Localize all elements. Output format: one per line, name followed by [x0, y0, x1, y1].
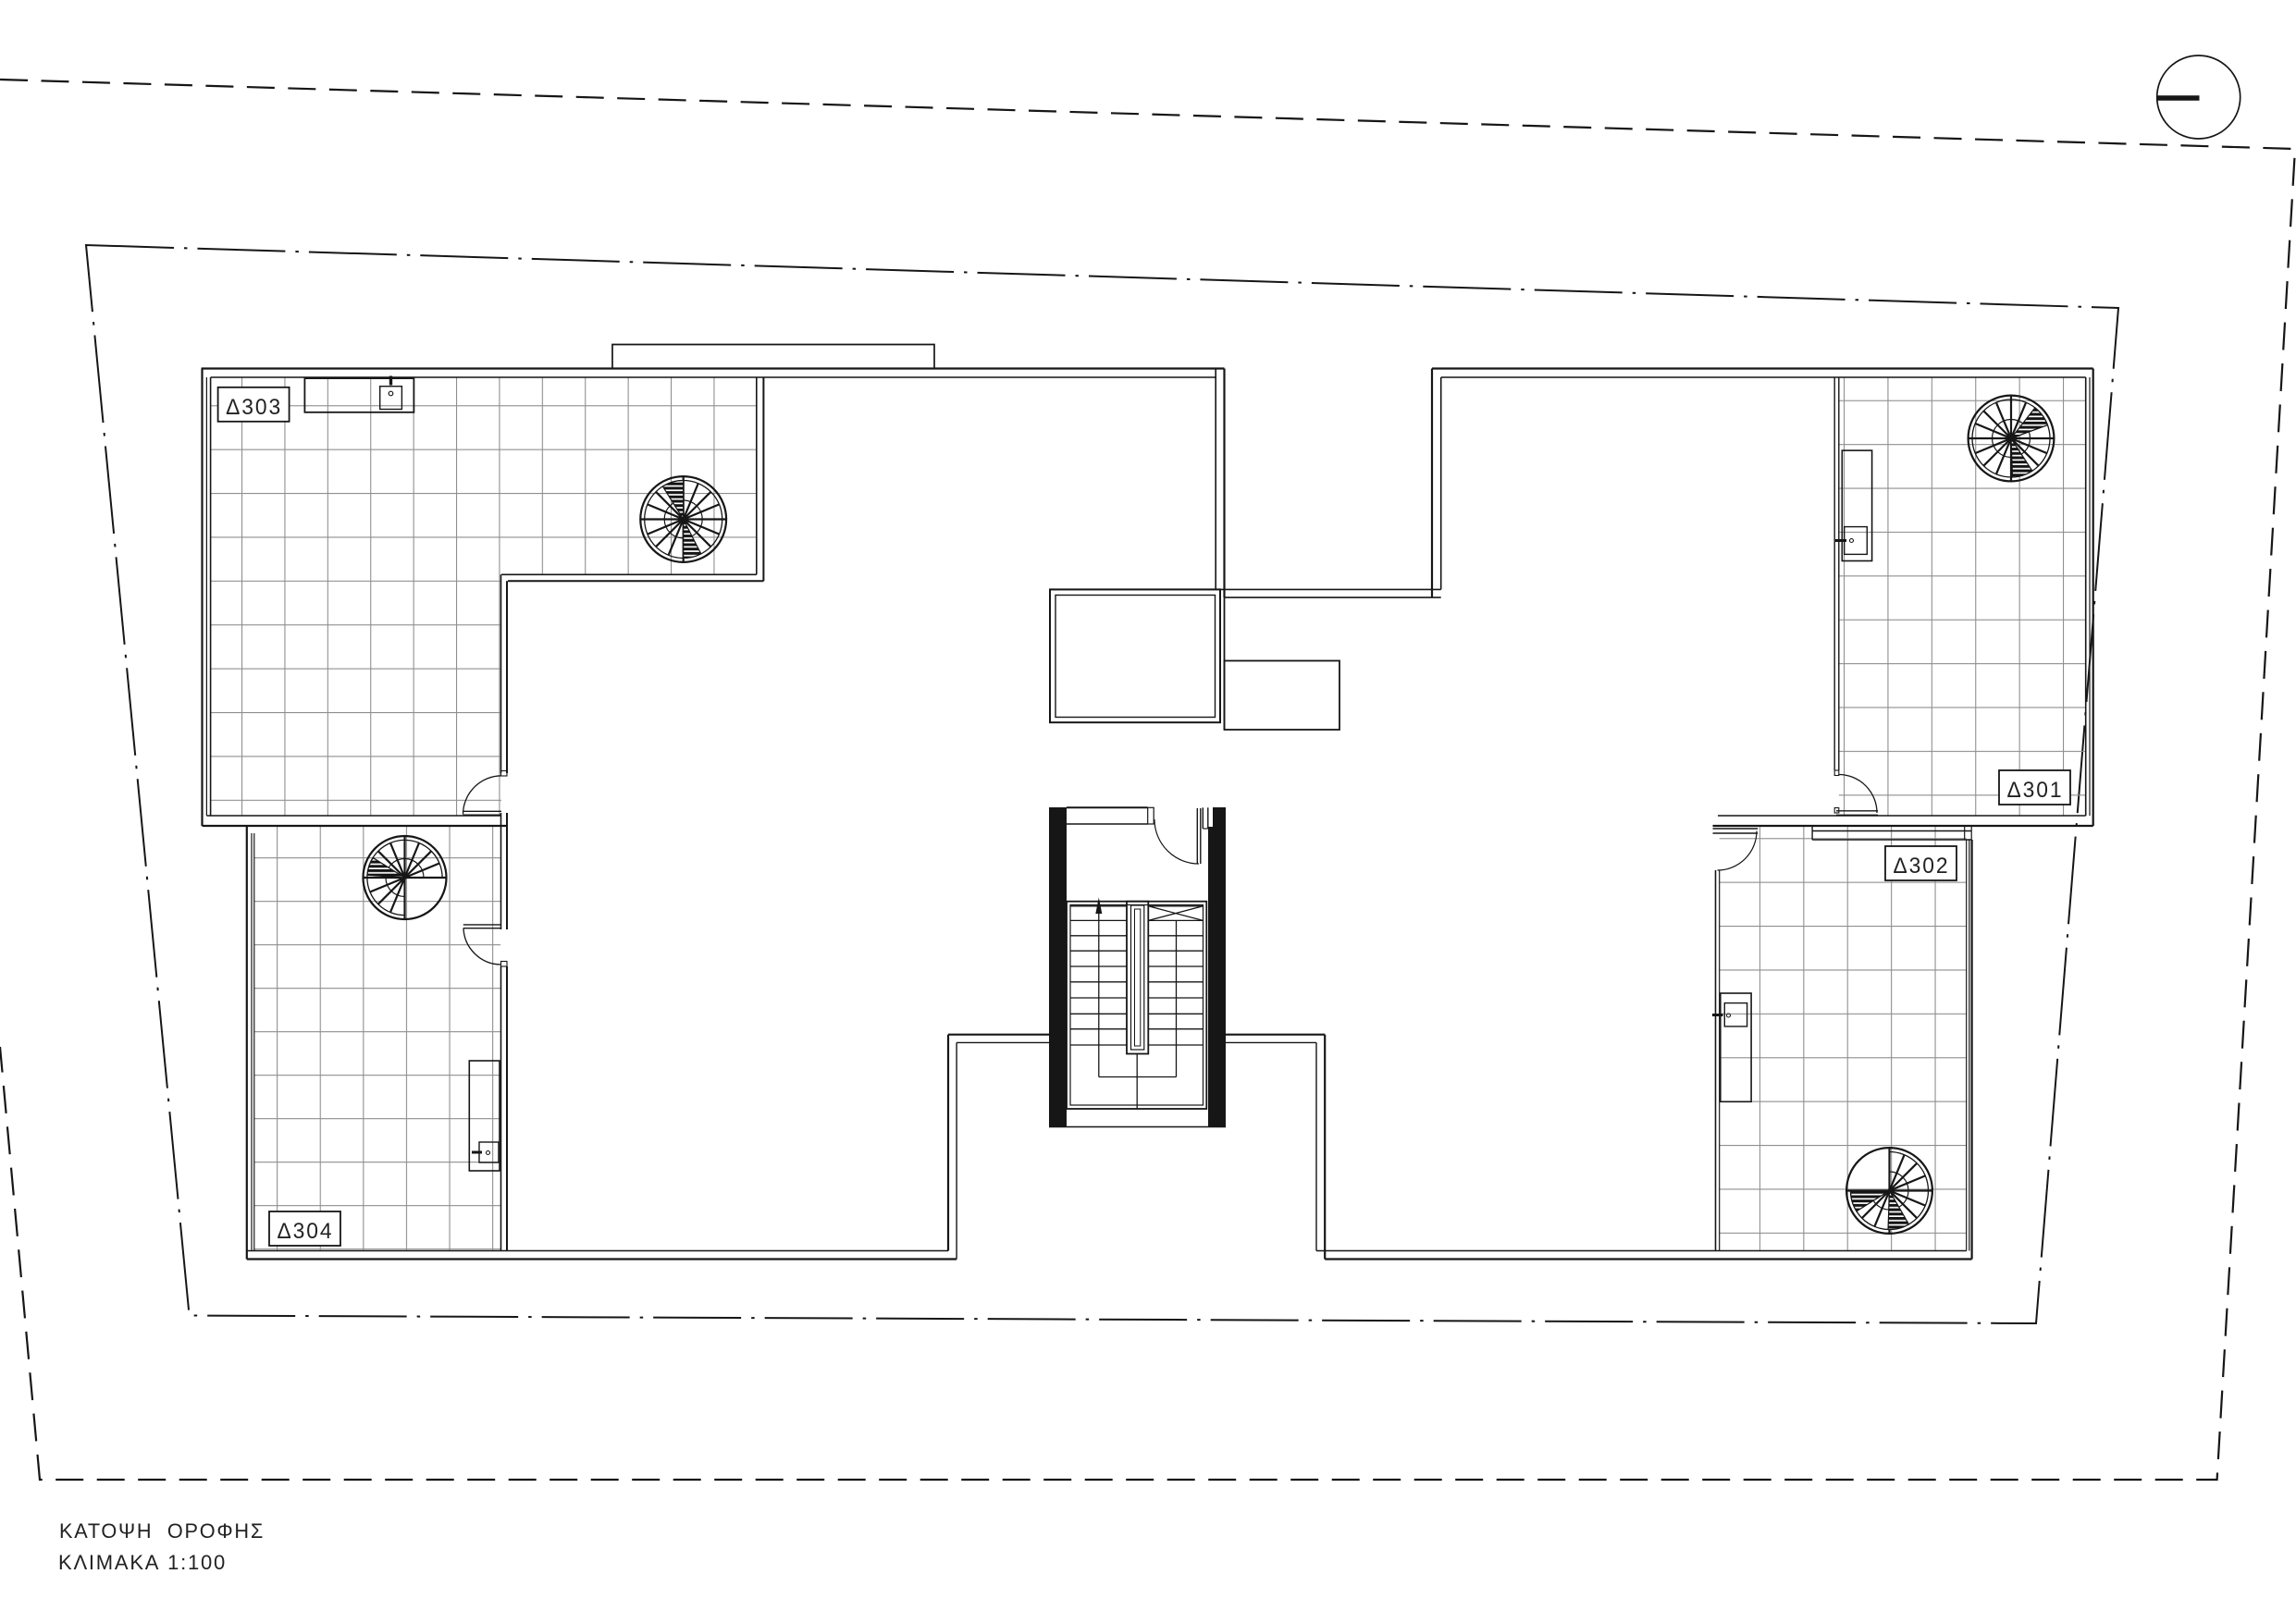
svg-text:Δ302: Δ302	[1894, 854, 1950, 879]
svg-text:ΚΛΙΜΑΚΑ 1:100: ΚΛΙΜΑΚΑ 1:100	[58, 1551, 227, 1574]
svg-text:Δ303: Δ303	[226, 395, 282, 420]
svg-text:Δ304: Δ304	[278, 1219, 334, 1244]
svg-text:ΚΑΤΟΨΗ ΟΡΟΦΗΣ: ΚΑΤΟΨΗ ΟΡΟΦΗΣ	[59, 1519, 265, 1543]
svg-text:Δ301: Δ301	[2007, 778, 2064, 803]
